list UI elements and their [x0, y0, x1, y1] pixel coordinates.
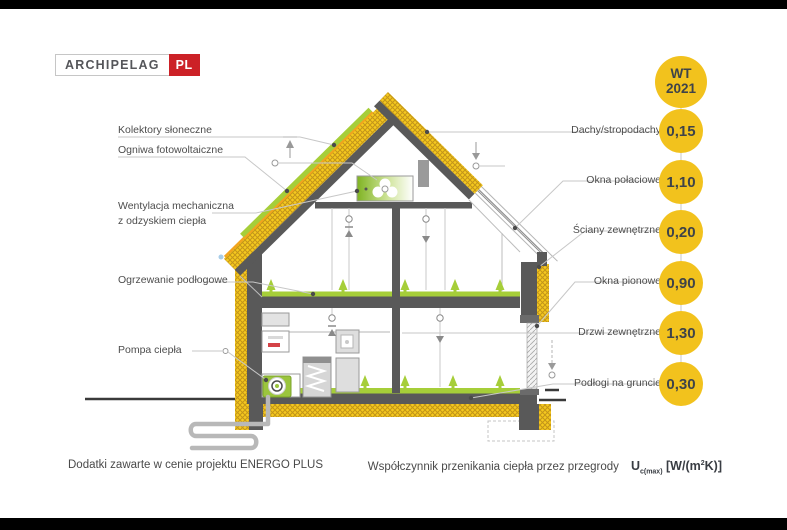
formula-u-subscript: c(max) — [640, 469, 663, 476]
left-label-kolektory-sloneczne: Kolektory słoneczne — [118, 124, 212, 136]
left-label-wentylacja-line1: Wentylacja mechaniczna — [118, 200, 234, 212]
footer-caption-left: Dodatki zawarte w cenie projektu ENERGO … — [68, 459, 323, 471]
formula-units-pre: [W/(m — [663, 459, 701, 473]
archipelag-logo: ARCHIPELAG PL — [55, 54, 200, 76]
u-value-badge-okna-pionowe: 0,90 — [659, 261, 703, 305]
wt-2021-badge: WT 2021 — [655, 56, 707, 108]
u-value-formula: Uc(max) [W/(m2K)] — [631, 459, 722, 473]
infographic-page: ARCHIPELAG PL Kolektory słoneczne Ogniwa… — [0, 0, 787, 530]
bottom-letterbox-bar — [0, 518, 787, 530]
formula-u: U — [631, 459, 640, 473]
wt-badge-line1: WT — [671, 67, 692, 82]
logo-pl-badge: PL — [169, 54, 200, 76]
footer-right-text: Współczynnik przenikania ciepła przez pr… — [368, 461, 619, 473]
left-label-ogrzewanie-podlogowe: Ogrzewanie podłogowe — [118, 274, 228, 286]
wt-badge-line2: 2021 — [666, 82, 696, 97]
left-label-ogniwa-fotowoltaiczne: Ogniwa fotowoltaiczne — [118, 144, 223, 156]
floors-and-ground — [85, 202, 566, 441]
u-value-badge-okna-polaciowe: 1,10 — [659, 160, 703, 204]
left-label-wentylacja-line2: z odzyskiem ciepła — [118, 215, 206, 227]
footer-caption-right: Współczynnik przenikania ciepła przez pr… — [368, 459, 722, 476]
right-label-sciany-zewnetrzne: Ściany zewnętrzne — [573, 224, 661, 236]
right-label-okna-polaciowe: Okna połaciowe — [586, 174, 661, 186]
ventilation-unit — [357, 160, 429, 201]
u-value-badge-drzwi: 1,30 — [659, 311, 703, 355]
formula-units-post: K)] — [705, 459, 722, 473]
u-value-badge-podlogi: 0,30 — [659, 362, 703, 406]
logo-name: ARCHIPELAG — [55, 54, 169, 76]
right-label-okna-pionowe: Okna pionowe — [594, 275, 661, 287]
right-label-dachy-stropodachy: Dachy/stropodachy — [571, 124, 661, 136]
left-label-pompa-ciepla: Pompa ciepła — [118, 344, 182, 356]
right-label-drzwi-zewnetrzne: Drzwi zewnętrzne — [578, 326, 661, 338]
u-value-badge-dachy: 0,15 — [659, 109, 703, 153]
buffer-tank — [303, 357, 331, 397]
u-value-badge-sciany: 0,20 — [659, 210, 703, 254]
heat-pump-unit — [262, 374, 300, 397]
right-label-podlogi-na-gruncie: Podłogi na gruncie — [574, 377, 661, 389]
